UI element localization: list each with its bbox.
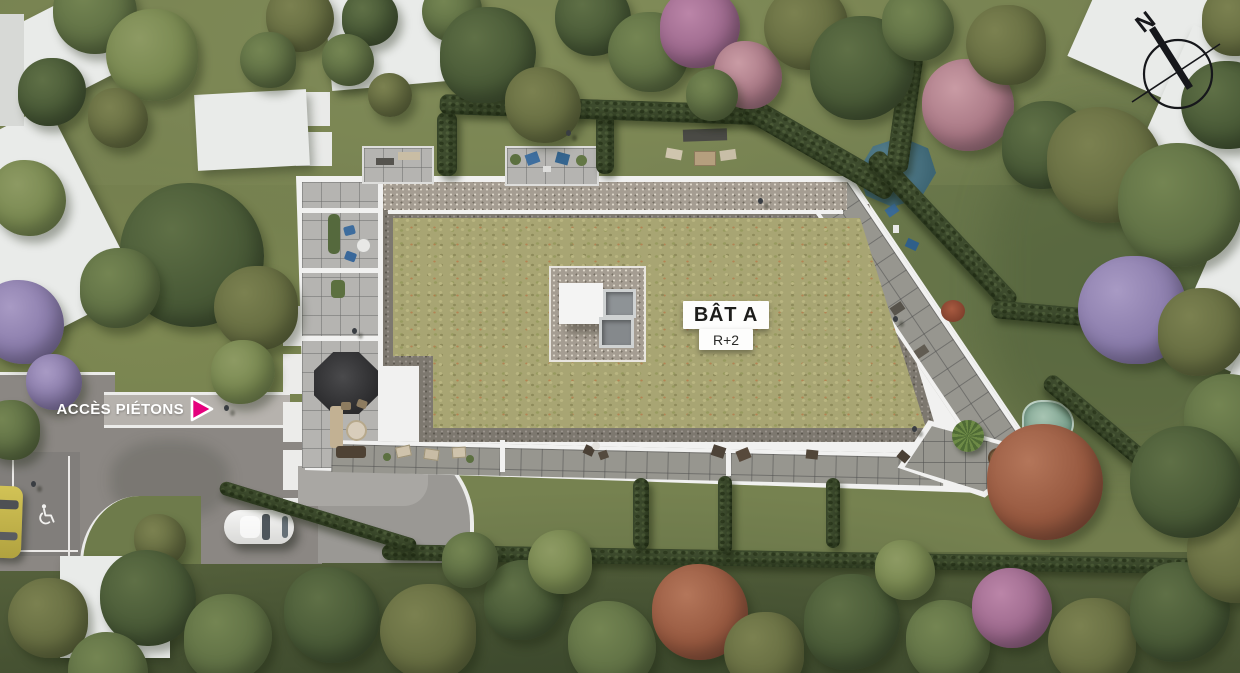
site-plan-aerial-view: BÂT A R+2 ACCÈS PIÉTONS N [0, 0, 1240, 673]
building-floors: R+2 [713, 332, 739, 348]
garden-bench [398, 152, 420, 160]
building-name: BÂT A [694, 304, 758, 327]
building-floors-label: R+2 [699, 329, 753, 350]
lounge-sofa [330, 406, 343, 448]
building-label[interactable]: BÂT A [683, 301, 769, 329]
plant-pot [510, 154, 521, 165]
planter [331, 280, 345, 298]
terrace-table [356, 238, 371, 253]
flowering-bush-red [941, 300, 965, 322]
terrace-divider [302, 208, 382, 213]
car-rear-window [282, 516, 288, 538]
wicker-chair [988, 448, 1008, 468]
planter [328, 214, 340, 254]
pergola [683, 128, 727, 142]
tree [120, 183, 264, 327]
picnic-table [694, 151, 716, 166]
patio-table [543, 166, 551, 172]
plant-pot [466, 455, 474, 463]
neighbour-roof [324, 0, 452, 91]
lounge-sofa [336, 446, 366, 458]
parked-car-yellow [0, 485, 23, 558]
parapet-line [388, 210, 843, 214]
green-roof [391, 216, 928, 430]
pedestrian-access-arrow-icon [189, 395, 215, 423]
neighbour-roof [194, 89, 310, 171]
pedestrian-access-label: ACCÈS PIÉTONS [52, 401, 184, 418]
terrace-divider [726, 444, 731, 476]
skylight [603, 289, 636, 318]
plant-pot [576, 155, 587, 166]
sun-lounger [423, 448, 439, 461]
plant-pot [383, 453, 391, 461]
bistro-set [806, 449, 819, 459]
pond [1022, 400, 1074, 446]
parking-line [68, 456, 70, 556]
palm-plant [952, 420, 984, 452]
wheelchair-icon [36, 503, 56, 527]
lounge-table [346, 420, 367, 441]
terrace-divider [302, 336, 382, 341]
garden-bench [376, 158, 394, 165]
sun-lounger [452, 447, 467, 459]
car-windshield [262, 514, 270, 540]
bistro-table [592, 442, 600, 450]
parapet-line [378, 182, 383, 470]
roof-gravel-top-strip [304, 182, 847, 210]
tree-band-bottom [0, 552, 1240, 673]
sun-lounger-blue [905, 238, 920, 251]
neighbour-roof-strip [0, 14, 24, 126]
neighbour-roof [60, 556, 170, 658]
terrace-divider [302, 268, 382, 273]
compass-rose-icon: N [1116, 0, 1240, 130]
lounge-chair [341, 402, 351, 410]
car-glass [0, 500, 19, 510]
terrace-divider [500, 440, 505, 472]
roof-access-box [559, 283, 603, 324]
parked-car-white [224, 510, 294, 544]
patio-top-middle [505, 146, 599, 186]
car-glass [0, 532, 18, 541]
garden-table [893, 225, 899, 233]
car-roof [240, 516, 260, 538]
skylight [599, 317, 634, 348]
